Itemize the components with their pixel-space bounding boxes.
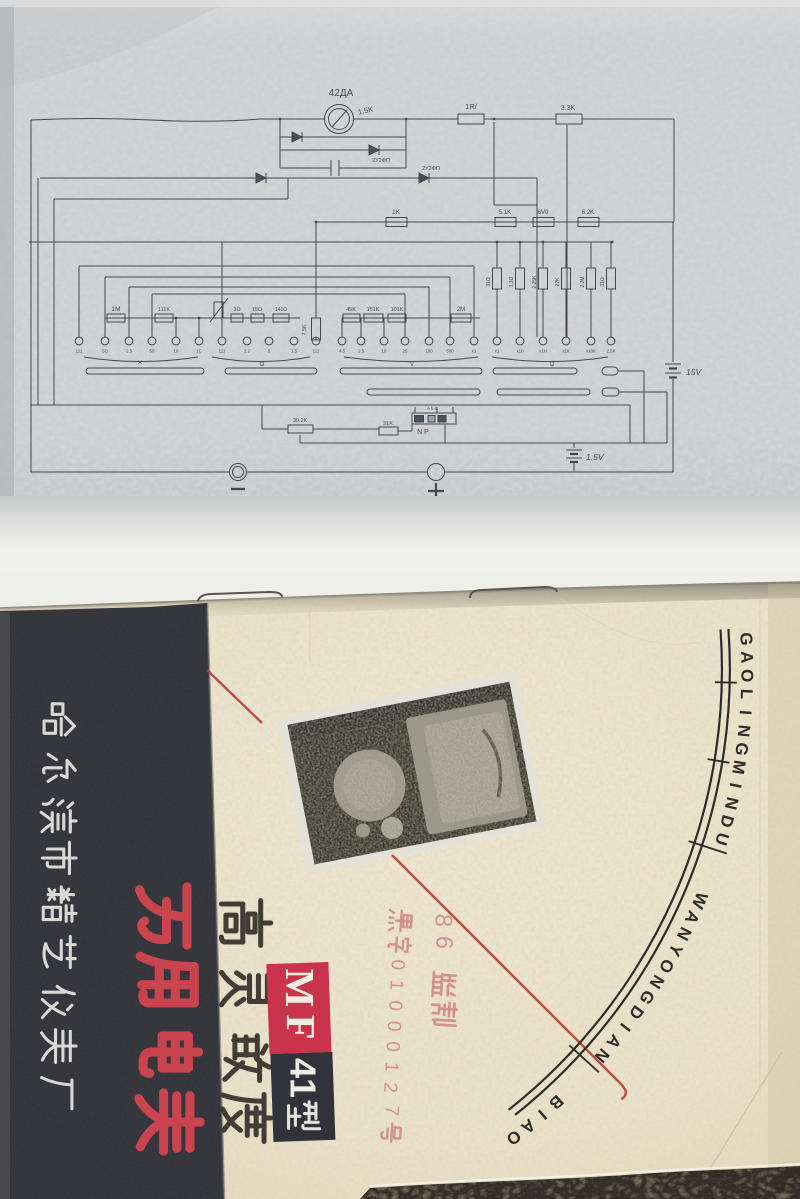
svg-text:10: 10 [174, 349, 179, 354]
svg-text:8: 8 [429, 913, 457, 928]
svg-text:Ω: Ω [260, 362, 265, 368]
svg-text:111: 111 [76, 349, 83, 354]
svg-text:141Ω: 141Ω [275, 307, 287, 313]
svg-text:A: A [737, 651, 756, 664]
svg-text:15V: 15V [686, 367, 702, 377]
svg-text:0: 0 [387, 959, 409, 971]
svg-text:45K: 45K [346, 307, 356, 313]
svg-text:151K: 151K [367, 307, 380, 313]
svg-text:0: 0 [383, 1020, 405, 1032]
svg-text:e k s: e k s [427, 406, 437, 411]
svg-text:0: 0 [384, 1000, 406, 1012]
svg-text:0: 0 [382, 1041, 404, 1053]
svg-text:1.5: 1.5 [291, 349, 298, 354]
svg-text:6V0: 6V0 [538, 210, 549, 216]
svg-text:25: 25 [403, 349, 408, 354]
svg-text:F: F [278, 1014, 324, 1039]
svg-text:2.5: 2.5 [126, 349, 133, 354]
svg-text:39.2K: 39.2K [293, 418, 308, 424]
svg-text:2M: 2M [457, 307, 465, 313]
svg-text:G: G [736, 632, 756, 646]
svg-text:31Ω: 31Ω [486, 277, 492, 287]
svg-text:4.5: 4.5 [339, 349, 346, 354]
svg-text:2У2ФП: 2У2ФП [422, 166, 440, 172]
svg-text:1K: 1K [392, 209, 401, 216]
svg-text:x1K: x1K [562, 349, 570, 354]
svg-text:3Ω: 3Ω [233, 307, 240, 313]
svg-text:3.3Ω: 3.3Ω [509, 276, 515, 287]
svg-text:6: 6 [430, 935, 458, 950]
svg-text:2У2ФП: 2У2ФП [372, 158, 390, 164]
svg-text:x1H: x1H [539, 349, 547, 354]
svg-text:111K: 111K [158, 307, 170, 313]
svg-text:5.1K: 5.1K [499, 210, 511, 216]
svg-text:N: N [734, 724, 754, 738]
svg-text:L: L [737, 689, 756, 700]
svg-text:22K: 22K [555, 277, 561, 287]
svg-text:42ДА: 42ДА [329, 88, 354, 99]
svg-text:2.5K: 2.5K [606, 349, 615, 354]
svg-text:1: 1 [380, 1061, 402, 1073]
svg-text:1C: 1C [196, 349, 202, 354]
svg-text:10: 10 [382, 349, 387, 354]
svg-text:6.2K: 6.2K [582, 210, 594, 216]
svg-text:5Ω: 5Ω [102, 349, 108, 354]
svg-text:3.3K: 3.3K [561, 105, 576, 112]
svg-text:2.5: 2.5 [358, 349, 365, 354]
svg-text:100: 100 [425, 349, 433, 354]
svg-text:111: 111 [313, 349, 320, 354]
svg-text:x10K: x10K [586, 349, 596, 354]
svg-text:1: 1 [385, 979, 407, 991]
svg-text:×: × [138, 358, 143, 367]
svg-text:2.25K: 2.25K [532, 275, 538, 289]
svg-text:x1: x1 [495, 349, 500, 354]
svg-text:M: M [277, 969, 323, 1008]
svg-text:1.5V: 1.5V [586, 452, 605, 462]
svg-text:Ω: Ω [550, 362, 555, 368]
svg-text:31K: 31K [383, 421, 393, 427]
svg-text:1M: 1M [111, 306, 120, 313]
svg-text:15Ω: 15Ω [252, 307, 262, 313]
svg-text:G: G [731, 741, 752, 757]
svg-text:V: V [410, 362, 414, 368]
svg-text:101K: 101K [391, 307, 404, 313]
svg-text:O: O [737, 669, 756, 682]
svg-text:2.2M: 2.2M [580, 276, 586, 287]
svg-text:7.5K: 7.5K [302, 324, 308, 336]
svg-text:2: 2 [379, 1082, 401, 1094]
svg-text:111: 111 [219, 349, 226, 354]
svg-text:2.2: 2.2 [244, 349, 251, 354]
svg-text:500: 500 [446, 349, 454, 354]
svg-text:1R/: 1R/ [465, 102, 478, 111]
svg-text:x10: x10 [516, 349, 524, 354]
svg-text:50: 50 [150, 349, 155, 354]
svg-text:41: 41 [283, 1058, 324, 1098]
svg-text:7: 7 [381, 1105, 403, 1117]
svg-text:31Ω: 31Ω [600, 277, 606, 287]
svg-text:N P: N P [417, 429, 429, 436]
svg-text:x1: x1 [472, 349, 477, 354]
